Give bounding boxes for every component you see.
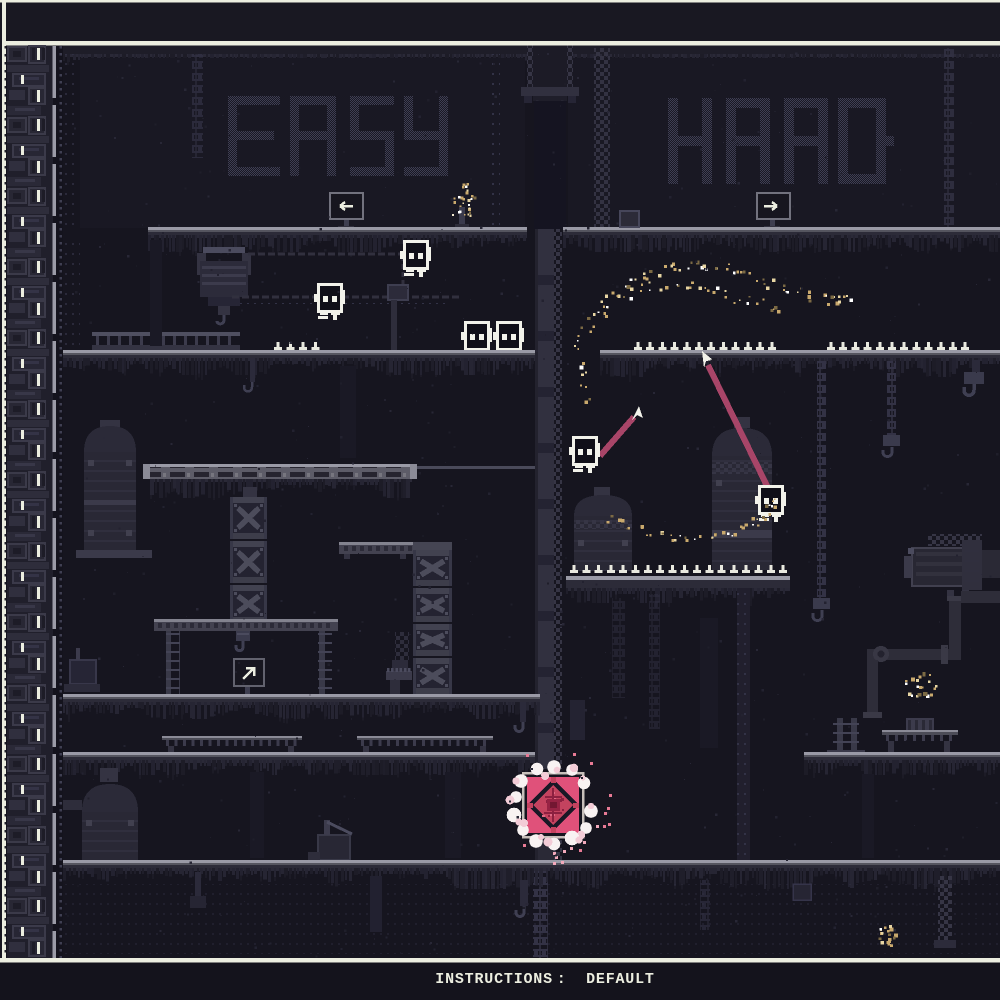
svg-text:INSTRUCTIONS : DEFAULT: INSTRUCTIONS : DEFAULT	[435, 971, 654, 988]
